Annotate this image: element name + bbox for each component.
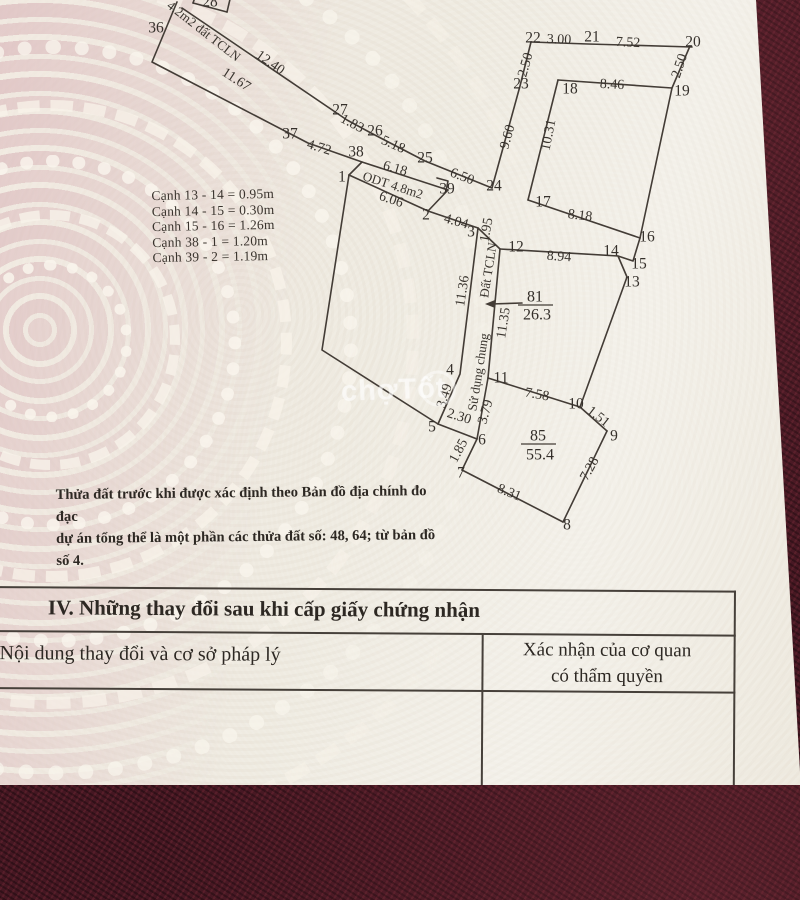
parcel-edge [580,277,627,407]
edge-note-line: Cạnh 39 - 2 = 1.19m [152,248,275,266]
vertex-label: 11 [494,370,509,387]
edge-length-notes: Cạnh 13 - 14 = 0.95mCạnh 14 - 15 = 0.30m… [151,186,275,266]
edge-length-label: 10.31 [539,118,560,152]
vertex-label: 26 [367,123,383,140]
plot-area-label: 55.4 [526,447,554,464]
vertex-label: 10 [568,396,584,413]
plot-number-label: 85 [530,428,546,445]
edge-length-label: 1.95 [477,217,496,244]
plot-number-label: 81 [527,289,543,306]
vertex-label: 22 [525,30,541,47]
edge-length-label: 12.40 [253,48,287,78]
vertex-label: 16 [639,229,655,246]
vertex-label: 2 [422,207,430,224]
parcel-edge [193,0,197,3]
edge-length-label: 11.36 [453,275,473,308]
vertex-label: 19 [674,83,690,100]
vertex-label: 36 [148,20,164,37]
edge-length-label: 7.28 [578,455,603,484]
edge-length-label: 7.58 [524,385,551,404]
edge-length-label: 8.31 [495,481,523,504]
parcel-description: Thửa đất trước khi được xác định theo Bả… [56,481,442,573]
chotot-watermark: chợTốt [340,372,447,409]
parcel-edge [227,0,231,12]
plot-81-arrow [491,303,522,304]
edge-length-label: 7.52 [615,35,640,51]
edge-length-label: 8.94 [546,249,571,266]
vertex-label: 12 [508,239,524,256]
vertex-label: 5 [428,419,436,436]
edge-length-label: 3.00 [546,32,571,48]
edge-length-label: 9.60 [497,123,518,151]
edge-length-label: 11.35 [494,307,514,340]
edge-length-label: 4.04 [442,211,470,232]
edge-note-line: Cạnh 15 - 16 = 1.26m [152,217,275,235]
column-header-confirmation: Xác nhận của cơ quan có thẩm quyền [481,637,732,690]
vertex-label: 3 [467,224,475,241]
vertex-label: 13 [624,274,640,291]
parcel-edge [349,162,362,175]
vertex-label: 38 [348,144,364,161]
edge-length-label: 5.18 [379,133,407,157]
vertex-label: 17 [535,194,551,211]
edge-length-label: 8.18 [567,207,593,225]
photo-of-land-certificate: { "watermark": { "brand_text": "chợTốt" … [0,0,800,785]
edge-length-label: 4.72 [305,137,333,159]
vertex-label: 28 [202,0,218,11]
parcel-description-line2: dự án tổng thể là một phần các thửa đất … [56,525,441,573]
column-header-confirmation-line2: có thẩm quyền [481,663,732,690]
vertex-label: 6 [478,432,486,449]
cadastral-diagram: 3637381234567891011121314151617181920212… [0,0,800,560]
vertex-label: 8 [563,517,571,534]
certificate-paper: 3637381234567891011121314151617181920212… [0,0,800,785]
vertex-label: 1 [338,169,346,186]
edge-length-label: 2.50 [669,52,691,80]
vertex-label: 21 [584,29,600,46]
vertex-label: 15 [631,256,647,273]
vertex-label: 18 [562,81,578,98]
vertex-label: 9 [610,428,618,445]
section-iv-title: IV. Những thay đổi sau khi cấp giấy chứn… [48,595,480,623]
edge-note-line: Cạnh 13 - 14 = 0.95m [151,186,274,204]
edge-length-label: 1.85 [447,437,472,466]
edge-length-label: 11.67 [219,65,253,94]
column-header-confirmation-line1: Xác nhận của cơ quan [482,637,733,664]
vertex-label: 7 [457,465,465,482]
vertex-label: 37 [282,126,298,143]
parcel-description-line1: Thửa đất trước khi được xác định theo Bả… [56,481,441,529]
vertex-label: 39 [439,181,455,198]
parcel-edge [182,8,492,188]
section-iv-table: IV. Những thay đổi sau khi cấp giấy chứn… [0,586,736,791]
column-header-content: Nội dung thay đổi và cơ sở pháp lý [0,642,281,667]
plot-81-arrowhead [485,300,495,308]
vertex-label: 24 [486,178,502,195]
edge-length-label: 1.51 [584,404,613,431]
edge-length-label: 1.83 [338,112,367,137]
vertex-label: 20 [685,34,701,51]
edge-length-label: 2.50 [515,51,536,79]
vertex-label: 14 [603,243,619,260]
edge-length-label: 8.46 [599,77,624,93]
plot-area-label: 26.3 [523,307,551,324]
vertex-label: 25 [417,150,433,167]
table-row-divider-1 [0,630,736,636]
